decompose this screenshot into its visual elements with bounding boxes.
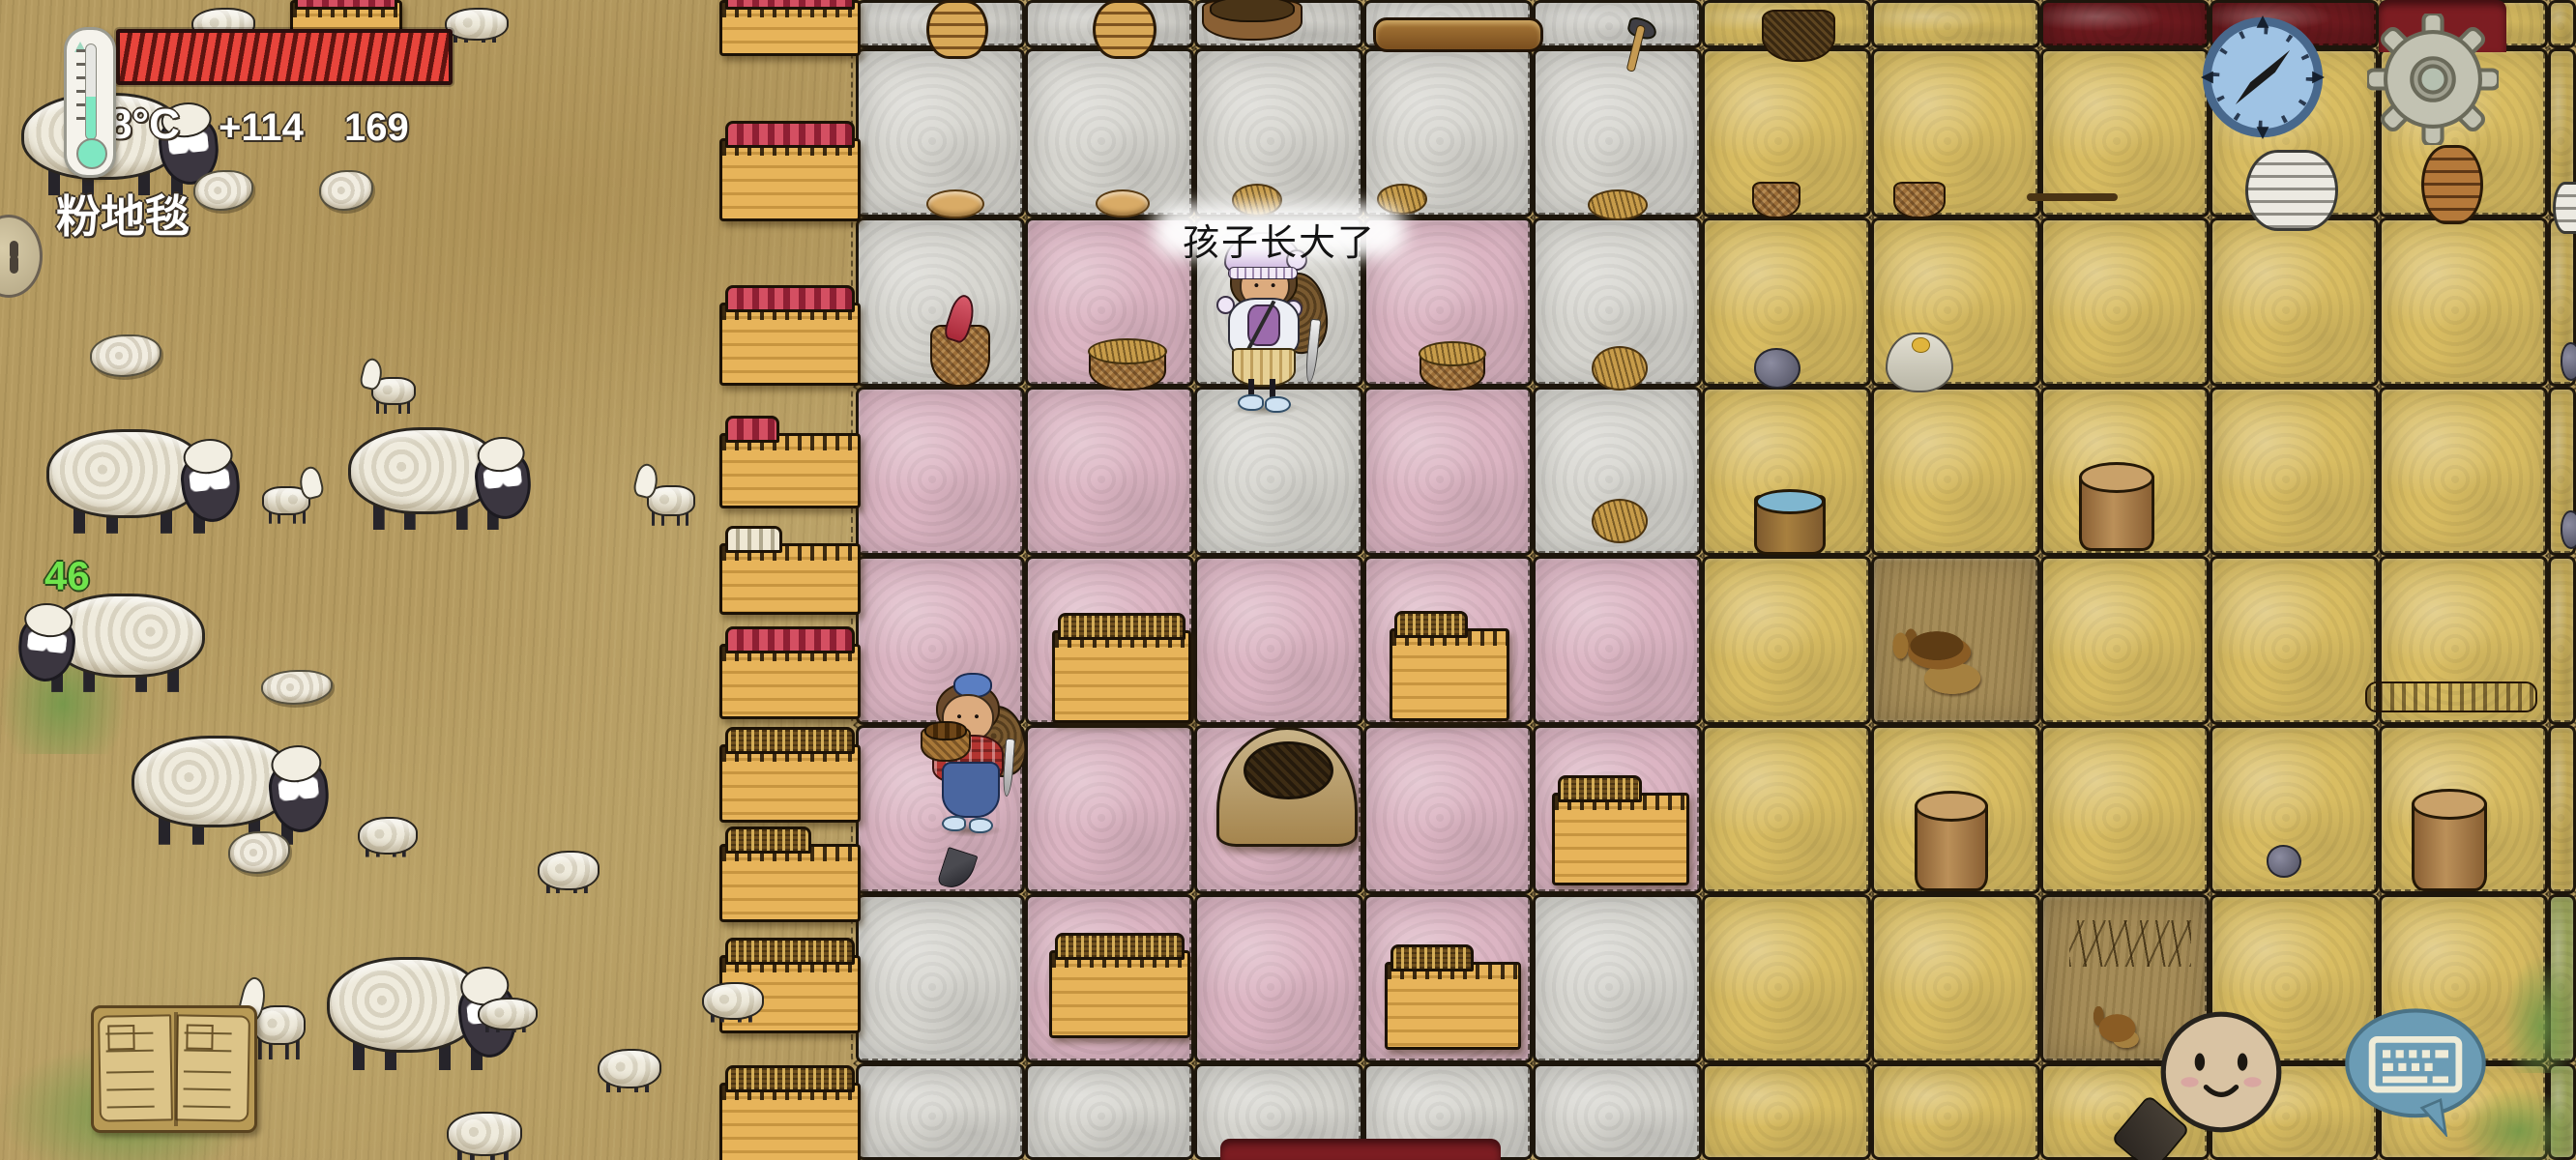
carpet-tile[interactable]	[1194, 894, 1363, 1063]
sheep[interactable]	[132, 731, 321, 845]
carpet-tile[interactable]	[2210, 217, 2379, 387]
needle-item[interactable]	[2027, 193, 2118, 201]
stone-item[interactable]	[2561, 510, 2576, 549]
fleece[interactable]	[228, 831, 290, 874]
side-panel-handle-icon[interactable]	[0, 215, 43, 298]
carpet-tile[interactable]	[2379, 387, 2548, 556]
carpet-tile[interactable]	[2040, 48, 2210, 217]
carpet-tile[interactable]	[2040, 725, 2210, 894]
crate-item[interactable]	[719, 543, 861, 615]
floor-tile-label: 粉地毯	[56, 182, 190, 246]
basket-item[interactable]	[1420, 350, 1485, 391]
weight-label: 169	[344, 106, 409, 150]
crafting-guide-book-icon[interactable]	[91, 1005, 257, 1133]
fleece[interactable]	[90, 334, 161, 377]
shoe	[1265, 396, 1291, 413]
redstrip-item[interactable]	[1220, 1139, 1501, 1160]
crock-item[interactable]	[2412, 797, 2487, 891]
crate-item[interactable]	[719, 1083, 861, 1160]
carpet-tile[interactable]	[2040, 0, 2210, 48]
carpet-tile[interactable]	[1363, 725, 1533, 894]
fleece[interactable]	[319, 170, 373, 211]
basket-item[interactable]	[1089, 348, 1166, 391]
carpet-tile[interactable]	[1702, 894, 1871, 1063]
game-viewport[interactable]: 孩子长大了 8°C +114 169 粉地毯 46	[0, 0, 2576, 1160]
carpet-tile[interactable]	[2040, 217, 2210, 387]
crock-item[interactable]	[1915, 798, 1988, 891]
child-character[interactable]	[921, 677, 1021, 833]
basket-item[interactable]	[1762, 10, 1835, 62]
stone-item[interactable]	[1754, 348, 1800, 389]
basket-item[interactable]	[1752, 182, 1800, 218]
food-bonus-label: +114	[219, 106, 304, 150]
sheaf-item[interactable]	[1592, 499, 1648, 543]
rabbits-item[interactable]	[1880, 609, 2009, 717]
crate-item[interactable]	[719, 433, 861, 508]
fleece[interactable]	[261, 670, 333, 705]
sheep-count-label: 46	[44, 553, 90, 599]
carpet-tile[interactable]	[2548, 725, 2576, 894]
log-item[interactable]	[1373, 17, 1543, 52]
compass-icon[interactable]	[2201, 15, 2325, 139]
carpet-tile[interactable]	[2210, 556, 2379, 725]
carpet-tile[interactable]	[1702, 725, 1871, 894]
thermometer-icon	[64, 27, 116, 178]
crate-item[interactable]	[1049, 950, 1190, 1038]
sheep[interactable]	[348, 423, 524, 530]
sheaf-item[interactable]	[1588, 189, 1648, 220]
carpet-tile[interactable]	[856, 894, 1025, 1063]
carpet-tile[interactable]	[2379, 217, 2548, 387]
goat[interactable]	[257, 470, 319, 524]
carpet-tile[interactable]	[2210, 387, 2379, 556]
tortilla-item[interactable]	[926, 189, 984, 218]
book-page	[175, 1014, 250, 1121]
carpet-tile[interactable]	[1363, 387, 1533, 556]
emote-smiley-icon[interactable]	[2158, 1009, 2284, 1135]
chat-keyboard-icon[interactable]	[2342, 1005, 2489, 1137]
crate-item[interactable]	[1552, 793, 1689, 885]
tstack-item[interactable]	[1093, 0, 1156, 59]
crate-item[interactable]	[719, 644, 861, 719]
thermometer-tube	[85, 43, 97, 140]
grass-item[interactable]	[2504, 957, 2576, 1073]
tstack-item[interactable]	[926, 0, 988, 59]
crate-item[interactable]	[1385, 962, 1521, 1050]
carpet-tile[interactable]	[1025, 725, 1194, 894]
stone-item[interactable]	[2561, 342, 2576, 381]
settings-gear-icon[interactable]	[2367, 14, 2499, 145]
stone-item[interactable]	[2267, 845, 2301, 878]
crate-item[interactable]	[719, 303, 861, 386]
goat[interactable]	[638, 468, 700, 526]
carpet-tile[interactable]	[1702, 1063, 1871, 1160]
lamb[interactable]	[702, 980, 760, 1023]
fleece[interactable]	[193, 170, 253, 211]
crate-item[interactable]	[719, 138, 861, 221]
carpet-tile[interactable]	[1194, 556, 1363, 725]
sheaf-item[interactable]	[1592, 346, 1648, 391]
lamb[interactable]	[598, 1047, 658, 1092]
carpet-tile[interactable]	[1871, 894, 2040, 1063]
carpet-tile[interactable]	[1871, 387, 2040, 556]
piestack-item[interactable]	[2421, 145, 2483, 224]
twigs-item[interactable]	[2069, 920, 2191, 967]
stick-item[interactable]	[2365, 681, 2537, 712]
pstack-item[interactable]	[2245, 150, 2338, 231]
overalls	[942, 762, 1000, 818]
crate-item[interactable]	[1052, 630, 1191, 723]
lamb[interactable]	[445, 6, 505, 43]
carpet-tile[interactable]	[2548, 0, 2576, 48]
thermometer-bulb	[76, 138, 107, 169]
basket-item[interactable]	[1893, 182, 1946, 218]
carpet-tile[interactable]	[1025, 387, 1194, 556]
temperature-bar	[116, 29, 453, 85]
crock-item[interactable]	[2079, 470, 2154, 551]
shoe	[969, 818, 993, 833]
tortilla-item[interactable]	[1096, 189, 1150, 217]
shoe	[942, 816, 966, 831]
shoe	[1238, 394, 1264, 411]
lamb[interactable]	[478, 996, 534, 1032]
crate-item[interactable]	[1390, 628, 1509, 721]
basket-item[interactable]	[930, 325, 990, 387]
crate-item[interactable]	[719, 744, 861, 823]
goat[interactable]	[364, 362, 420, 414]
carpet-tile[interactable]	[1025, 1063, 1194, 1160]
crate-item[interactable]	[719, 0, 861, 56]
crate-item[interactable]	[719, 844, 861, 922]
sack-item[interactable]	[1886, 333, 1953, 392]
book-page	[98, 1014, 173, 1121]
temperature-label: 8°C	[108, 101, 180, 149]
carpet-tile[interactable]	[1871, 1063, 2040, 1160]
speech-text: 孩子长大了	[1153, 213, 1406, 266]
basket-item[interactable]	[1202, 0, 1303, 41]
bucket-item[interactable]	[1754, 495, 1826, 555]
carpet-tile[interactable]	[2040, 556, 2210, 725]
lamb[interactable]	[447, 1110, 518, 1160]
rabbit-item[interactable]	[2083, 996, 2154, 1063]
carpet-tile[interactable]	[1871, 0, 2040, 48]
lamb[interactable]	[358, 815, 414, 857]
carpet-tile[interactable]	[1702, 556, 1871, 725]
carpet-tile[interactable]	[2548, 556, 2576, 725]
carpet-tile[interactable]	[1533, 1063, 1702, 1160]
held-basket	[921, 727, 971, 762]
lamb[interactable]	[538, 849, 596, 893]
carpet-tile[interactable]	[856, 387, 1025, 556]
sheep[interactable]	[46, 425, 232, 534]
sheep[interactable]	[25, 590, 205, 692]
pstack-item[interactable]	[2553, 182, 2576, 234]
carpet-tile[interactable]	[1533, 556, 1702, 725]
carpet-tile[interactable]	[856, 1063, 1025, 1160]
carpet-tile[interactable]	[1533, 894, 1702, 1063]
